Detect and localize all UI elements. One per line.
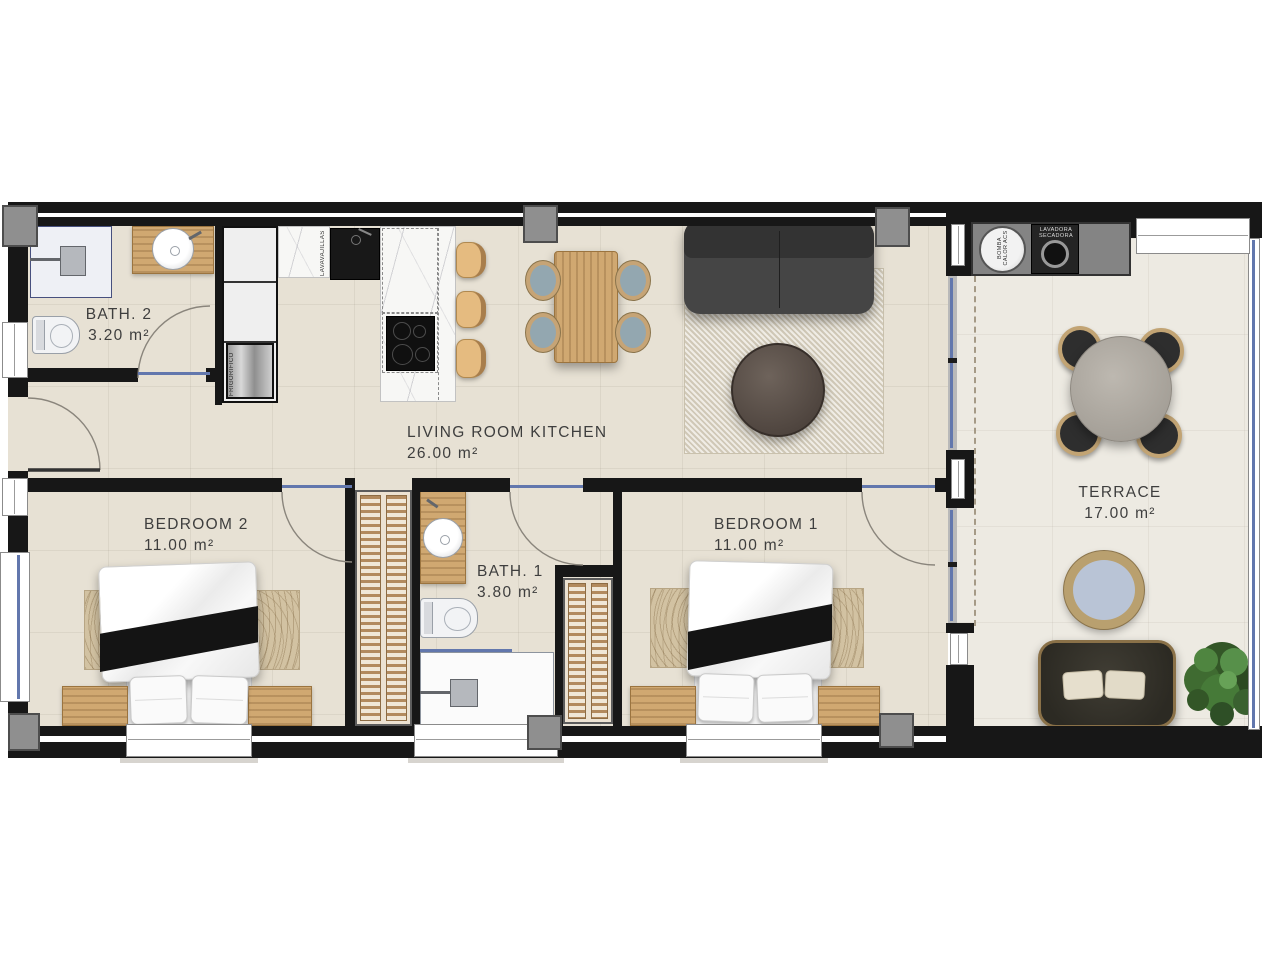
room-label-terrace: TERRACE 17.00 m²	[1058, 482, 1182, 524]
door-bedroom2-arc	[278, 488, 356, 566]
pillow	[697, 673, 755, 723]
sliding-door-glass-1[interactable]	[950, 278, 953, 448]
room-area: 17.00 m²	[1058, 503, 1182, 524]
sofa	[684, 220, 874, 314]
toilet-bath1	[420, 598, 478, 638]
heat-pump-label: BOMBA CALOR ACS	[997, 228, 1009, 268]
island-counter-split-dashed	[438, 228, 439, 400]
room-area: 26.00 m²	[407, 443, 607, 464]
window-sill	[408, 758, 564, 763]
wardrobe-bedroom1[interactable]	[563, 578, 613, 724]
door-bath1-arc	[506, 488, 588, 570]
column	[875, 207, 910, 247]
pillow	[756, 673, 814, 723]
washer-dryer: LAVADORA SECADORA	[1031, 224, 1079, 274]
room-label-bath1: BATH. 1 3.80 m²	[477, 561, 544, 603]
nightstand	[248, 686, 312, 726]
glassdoor-bedroom2-glass	[17, 555, 20, 699]
dining-chair	[526, 313, 560, 352]
shower-screen-bath1	[420, 649, 512, 652]
window-bedroom1	[686, 724, 822, 757]
terrace-table	[1070, 336, 1172, 442]
bar-stool	[456, 291, 486, 328]
bar-stool	[456, 242, 486, 278]
shower-head-icon	[450, 679, 478, 707]
wall-bedroom2-top	[28, 478, 282, 492]
shower-head-icon	[60, 246, 86, 276]
room-name: BEDROOM 2	[144, 514, 249, 535]
room-label-living: LIVING ROOM KITCHEN 26.00 m²	[407, 422, 607, 464]
wall-top-inner	[8, 217, 960, 226]
terrace-sofa	[1038, 640, 1176, 728]
fridge-label: FRIGORIFICO	[229, 348, 235, 396]
dining-chair	[526, 261, 560, 300]
room-area: 3.80 m²	[477, 582, 544, 603]
room-label-bedroom1: BEDROOM 1 11.00 m²	[714, 514, 819, 556]
door-bedroom1-leaf[interactable]	[862, 485, 935, 488]
washer-dryer-label: LAVADORA SECADORA	[1034, 227, 1078, 239]
door-bedroom1-arc	[858, 488, 940, 570]
window-divider-top	[951, 224, 965, 266]
dishwasher-label: LAVAVAJILLAS	[320, 230, 326, 276]
column	[8, 713, 40, 751]
cooktop-dashed-outline	[382, 312, 438, 373]
window-sill	[120, 758, 258, 763]
room-name: BATH. 1	[477, 561, 544, 582]
pillow	[190, 675, 249, 725]
wall-corridor-right	[412, 478, 420, 726]
washbasin-bath2	[152, 228, 194, 270]
column	[2, 205, 38, 247]
room-name: TERRACE	[1058, 482, 1182, 503]
shower-pipe	[420, 691, 452, 694]
nightstand	[818, 686, 880, 726]
nightstand	[62, 686, 128, 726]
window-divider-mid	[951, 459, 965, 499]
room-name: BEDROOM 1	[714, 514, 819, 535]
glassdoor-bedroom2-left[interactable]	[0, 552, 30, 702]
dining-chair	[616, 313, 650, 352]
glass-joint	[948, 358, 957, 363]
cushion	[1104, 670, 1145, 700]
wall-bedroom1-left	[613, 478, 622, 726]
wall-terrace-bottom	[956, 726, 1262, 758]
room-area: 3.20 m²	[57, 325, 181, 346]
heat-pump: BOMBA CALOR ACS	[979, 226, 1026, 273]
room-area: 11.00 m²	[714, 535, 819, 556]
kitchen-sink	[330, 228, 380, 280]
door-entry[interactable]	[8, 396, 104, 476]
room-label-bedroom2: BEDROOM 2 11.00 m²	[144, 514, 249, 556]
nightstand	[630, 686, 696, 726]
wall-divider-low	[946, 623, 974, 633]
door-bath1-leaf[interactable]	[510, 485, 583, 488]
floor-plan: FRIGORIFICO LAVAVAJILLAS	[0, 0, 1280, 960]
dining-chair	[616, 261, 650, 300]
terrace-coffee-table	[1064, 551, 1144, 629]
fridge: FRIGORIFICO	[226, 343, 274, 399]
wall-bedroom1-top	[583, 478, 862, 492]
door-bath2-leaf[interactable]	[138, 372, 210, 375]
upper-cabinet-dashed	[382, 228, 438, 314]
window-bedroom2	[126, 724, 252, 757]
wardrobe-bedroom2[interactable]	[355, 490, 412, 726]
window-sill	[680, 758, 828, 763]
roof-overhang-dashed-line	[974, 276, 978, 626]
room-name: BATH. 2	[57, 304, 181, 325]
shower-pipe	[30, 258, 62, 261]
column	[527, 715, 562, 750]
wall-divider-bottom	[946, 665, 974, 758]
coffee-table	[731, 343, 825, 437]
column	[523, 205, 558, 243]
window-divider-low	[950, 633, 968, 665]
wall-niche-left	[555, 565, 563, 726]
washbasin-bath1	[423, 518, 463, 558]
window-hall-left	[2, 478, 28, 516]
wall-bath1-top	[412, 478, 510, 492]
column	[879, 713, 914, 748]
room-area: 11.00 m²	[144, 535, 249, 556]
room-label-bath2: BATH. 2 3.20 m²	[57, 304, 181, 346]
pillow	[129, 675, 188, 725]
terrace-railing-glass	[1252, 240, 1255, 728]
cushion	[1062, 670, 1104, 701]
dining-table	[554, 251, 618, 363]
wall-top-outer	[8, 202, 960, 213]
wall-kitchen-left	[215, 226, 222, 405]
bar-stool	[456, 339, 486, 378]
room-name: LIVING ROOM KITCHEN	[407, 422, 607, 443]
window-bath2-left	[2, 322, 28, 378]
glass-joint	[948, 562, 957, 567]
washer-drum	[1041, 240, 1069, 268]
door-bedroom2-leaf[interactable]	[282, 485, 352, 488]
terrace-top-window	[1136, 218, 1250, 254]
